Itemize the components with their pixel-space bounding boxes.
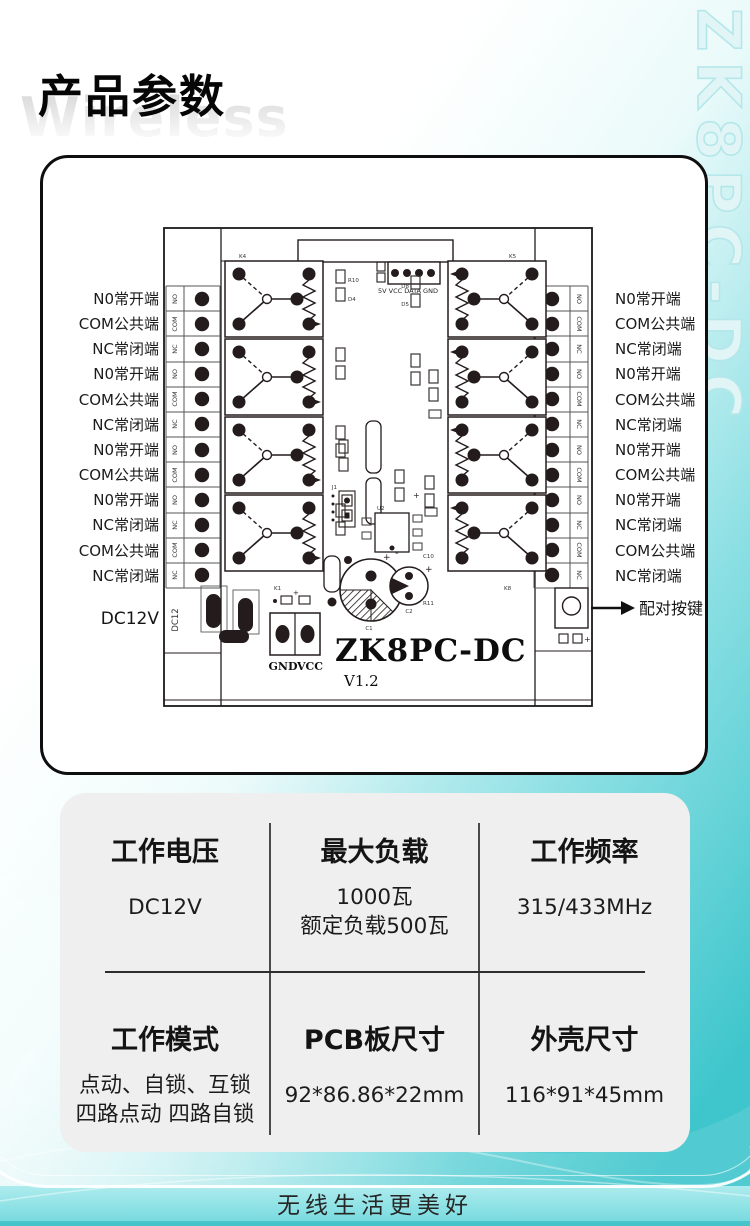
dc12v-label: DC12V — [101, 609, 160, 629]
svg-text:R11: R11 — [423, 601, 434, 607]
terminal-label: NC常闭端 — [615, 516, 682, 534]
dc-strip-tag: DC12 — [171, 608, 181, 631]
svg-text:K8: K8 — [504, 586, 512, 592]
spec-cell-frequency: 工作频率 315/433MHz — [479, 793, 690, 973]
spec-title: PCB板尺寸 — [270, 1025, 479, 1057]
svg-text:NO: NO — [171, 445, 179, 455]
terminal-label: N0常开端 — [93, 290, 159, 308]
terminal-label: NC常闭端 — [615, 416, 682, 434]
svg-text:R10: R10 — [348, 278, 359, 284]
terminal-label: NC常闭端 — [92, 516, 159, 534]
svg-text:+: + — [425, 565, 433, 575]
svg-text:NO: NO — [575, 445, 583, 455]
svg-text:NC: NC — [171, 520, 179, 530]
page-title: 产品参数 — [38, 60, 226, 125]
svg-text:K5: K5 — [509, 254, 517, 260]
svg-text:NO: NO — [171, 369, 179, 379]
svg-text:COM: COM — [575, 391, 583, 406]
board-name: ZK8PC-DC — [335, 633, 527, 669]
svg-text:D8: D8 — [401, 284, 409, 290]
spec-value: 额定负载500瓦 — [270, 912, 479, 941]
svg-text:C10: C10 — [423, 554, 434, 560]
gnd-vcc-terminal — [270, 613, 320, 655]
pcb-board-drawing: 5V VCC DATA GND NO COM NC NO COM NC NO C… — [43, 158, 705, 772]
svg-text:COM: COM — [171, 391, 179, 406]
rf-connector — [388, 262, 440, 284]
svg-text:NO: NO — [171, 495, 179, 505]
svg-text:K4: K4 — [239, 254, 247, 260]
spec-value: 116*91*45mm — [479, 1081, 690, 1110]
svg-text:NO: NO — [575, 369, 583, 379]
spec-value: 92*86.86*22mm — [270, 1081, 479, 1110]
terminal-label: NC常闭端 — [92, 567, 159, 585]
svg-text:+: + — [293, 589, 299, 597]
right-terminal-labels: N0常开端 COM公共端 NC常闭端 N0常开端 COM公共端 NC常闭端 N0… — [615, 290, 695, 585]
svg-text:NC: NC — [575, 520, 583, 530]
svg-text:K1: K1 — [274, 586, 281, 592]
spec-divider-vertical — [269, 823, 271, 1135]
terminal-label: N0常开端 — [93, 441, 159, 459]
spec-table-card: 工作电压 DC12V 最大负载 1000瓦 额定负载500瓦 工作频率 315/… — [60, 793, 690, 1152]
spec-cell-work-mode: 工作模式 点动、自锁、互锁 四路点动 四路自锁 — [60, 973, 270, 1152]
terminal-label: COM公共端 — [79, 315, 159, 333]
relay-block — [225, 495, 323, 571]
terminal-label: COM公共端 — [615, 542, 695, 560]
svg-text:NC: NC — [575, 570, 583, 580]
svg-text:COM: COM — [575, 467, 583, 482]
footer-edge-strip — [0, 1221, 750, 1226]
terminal-label: N0常开端 — [615, 441, 681, 459]
spec-value: 点动、自锁、互锁 — [60, 1071, 270, 1100]
terminal-label: NC常闭端 — [92, 340, 159, 358]
svg-text:NO: NO — [575, 495, 583, 505]
terminal-label: COM公共端 — [79, 466, 159, 484]
svg-text:U2: U2 — [377, 506, 385, 512]
left-terminal-labels: N0常开端 COM公共端 NC常闭端 N0常开端 COM公共端 NC常闭端 N0… — [79, 290, 159, 585]
svg-text:NC: NC — [171, 570, 179, 580]
svg-text:COM: COM — [171, 467, 179, 482]
terminal-label: NC常闭端 — [615, 340, 682, 358]
svg-text:NO: NO — [171, 294, 179, 304]
terminal-label: N0常开端 — [93, 365, 159, 383]
svg-text:C2: C2 — [405, 609, 412, 615]
relay-block — [448, 495, 546, 571]
svg-text:COM: COM — [575, 316, 583, 331]
relay-block — [225, 339, 323, 415]
footer-slogan: 无线生活更美好 — [0, 1186, 750, 1220]
spec-divider-horizontal — [105, 971, 645, 973]
relay-block — [448, 261, 546, 337]
gnd-label: GND — [269, 660, 298, 673]
terminal-label: NC常闭端 — [92, 416, 159, 434]
svg-text:-: - — [395, 548, 399, 559]
svg-text:COM: COM — [171, 316, 179, 331]
terminal-label: COM公共端 — [615, 315, 695, 333]
board-version: V1.2 — [343, 672, 379, 690]
terminal-label: N0常开端 — [615, 491, 681, 509]
top-header-block — [298, 240, 453, 262]
terminal-label: COM公共端 — [615, 466, 695, 484]
pcb-diagram-card: 5V VCC DATA GND NO COM NC NO COM NC NO C… — [40, 155, 708, 775]
spec-cell-pcb-size: PCB板尺寸 92*86.86*22mm — [270, 973, 479, 1152]
spec-value: 四路点动 四路自锁 — [60, 1100, 270, 1129]
spec-title: 最大负载 — [270, 837, 479, 869]
spec-value: DC12V — [60, 893, 270, 922]
terminal-label: COM公共端 — [79, 391, 159, 409]
terminal-label: N0常开端 — [93, 491, 159, 509]
relay-block — [448, 417, 546, 493]
svg-text:NC: NC — [575, 344, 583, 354]
spec-title: 工作电压 — [60, 837, 270, 869]
spec-cell-max-load: 最大负载 1000瓦 额定负载500瓦 — [270, 793, 479, 973]
relay-block — [225, 261, 323, 337]
svg-text:D4: D4 — [348, 297, 356, 303]
spec-cell-shell-size: 外壳尺寸 116*91*45mm — [479, 973, 690, 1152]
spec-title: 工作模式 — [60, 1025, 270, 1057]
spec-value: 315/433MHz — [479, 893, 690, 922]
svg-text:NC: NC — [575, 419, 583, 429]
svg-text:J1: J1 — [331, 485, 337, 491]
spec-title: 外壳尺寸 — [479, 1025, 690, 1057]
terminal-label: NC常闭端 — [615, 567, 682, 585]
relay-block — [225, 417, 323, 493]
terminal-label: COM公共端 — [615, 391, 695, 409]
svg-text:C1: C1 — [365, 626, 372, 632]
svg-text:NO: NO — [575, 294, 583, 304]
terminal-label: COM公共端 — [79, 542, 159, 560]
svg-text:+: + — [413, 491, 420, 500]
svg-text:NC: NC — [171, 419, 179, 429]
relay-block — [448, 339, 546, 415]
pairing-arrow-icon — [591, 601, 635, 615]
spec-cell-voltage: 工作电压 DC12V — [60, 793, 270, 973]
svg-text:NC: NC — [171, 344, 179, 354]
spec-divider-vertical — [478, 823, 480, 1135]
svg-text:COM: COM — [575, 542, 583, 557]
svg-text:D5: D5 — [401, 302, 409, 308]
svg-text:+: + — [584, 635, 591, 644]
svg-text:COM: COM — [171, 542, 179, 557]
pairing-button-label: 配对按键 — [639, 599, 703, 618]
spec-value: 1000瓦 — [270, 883, 479, 912]
spec-title: 工作频率 — [479, 837, 690, 869]
terminal-label: N0常开端 — [615, 290, 681, 308]
terminal-label: N0常开端 — [615, 365, 681, 383]
vcc-label: VCC — [296, 660, 323, 673]
